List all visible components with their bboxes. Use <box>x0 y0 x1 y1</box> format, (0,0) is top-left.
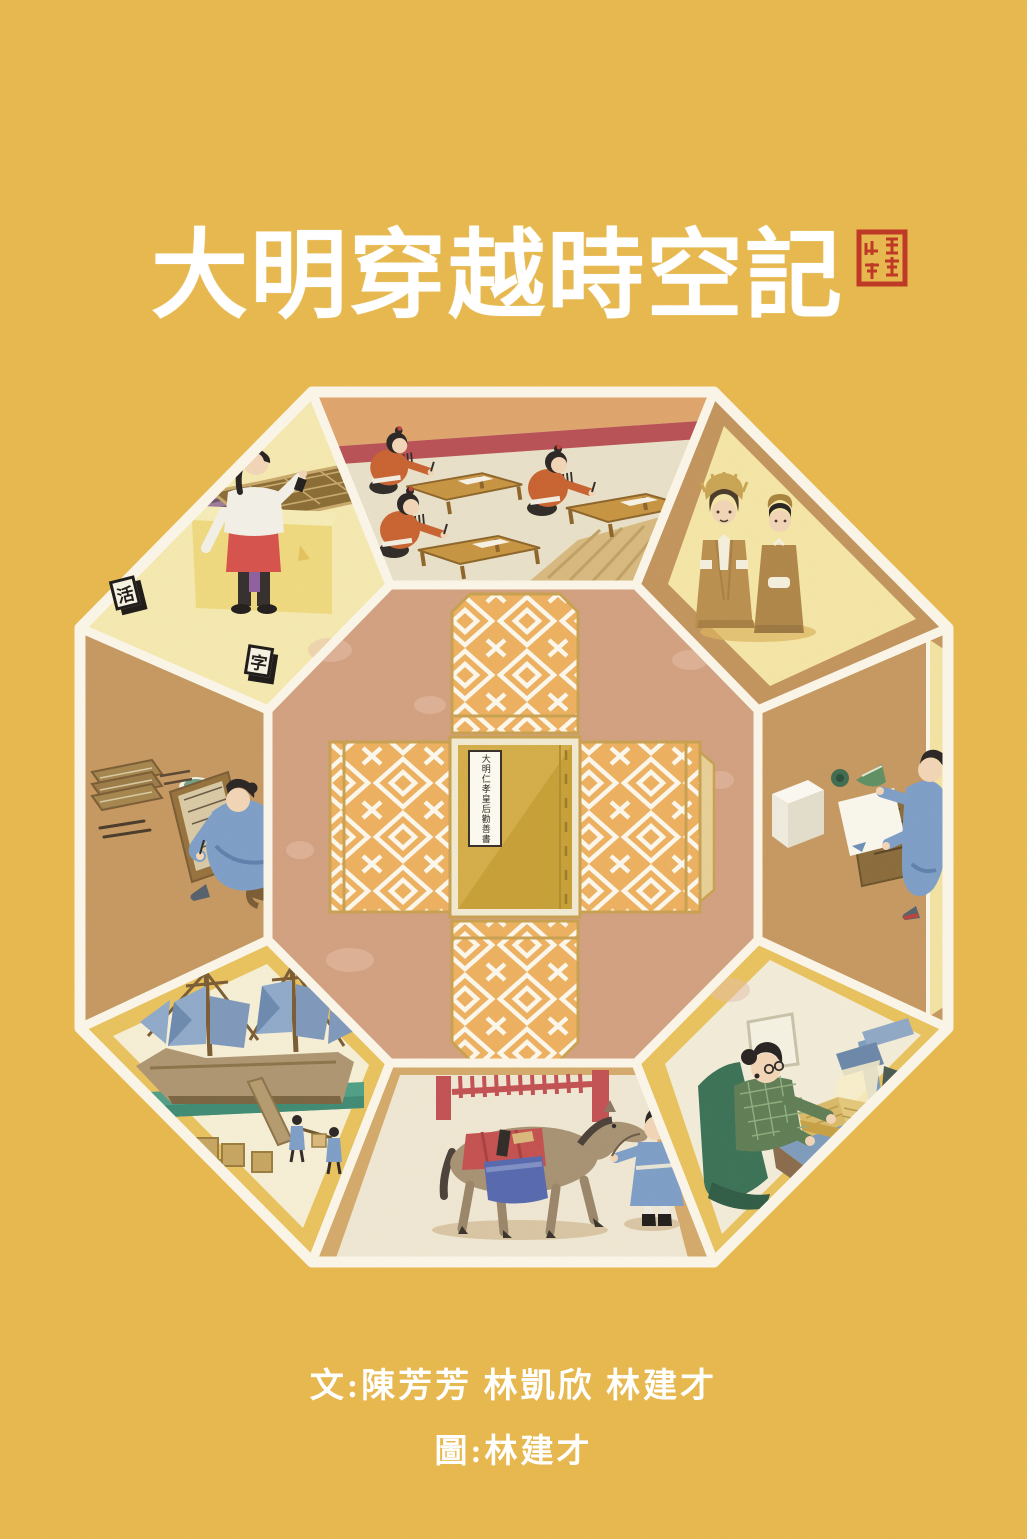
credit-written-by: 文:陳芳芳 林凱欣 林建才 <box>0 1358 1027 1407</box>
artist-seal-icon <box>856 227 908 289</box>
movable-type-block-zi: 字 <box>244 644 274 678</box>
credit-illustrated-by: 圖:林建才 <box>0 1424 1027 1472</box>
book-cover: 大明穿越時空記 活 字 大明仁孝皇后勸善書 文:陳芳芳 林凱欣 林建才 圖:林建… <box>0 0 1027 1539</box>
center-book-title-label: 大明仁孝皇后勸善書 <box>468 750 502 847</box>
